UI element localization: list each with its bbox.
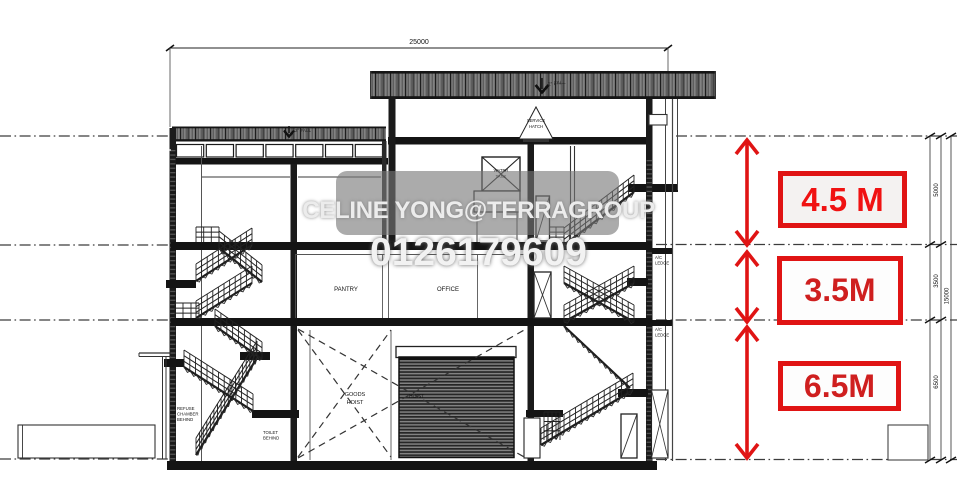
svg-text:5000: 5000	[934, 183, 940, 197]
svg-text:OFFICE: OFFICE	[437, 287, 459, 293]
svg-text:6500: 6500	[934, 375, 940, 389]
svg-text:BEHIND: BEHIND	[177, 417, 193, 422]
svg-text:GOODS: GOODS	[345, 392, 366, 398]
svg-text:HOIST: HOIST	[409, 394, 424, 400]
svg-text:25000: 25000	[409, 39, 429, 46]
svg-text:BEHIND: BEHIND	[263, 436, 279, 441]
svg-text:2° FALL: 2° FALL	[295, 128, 312, 133]
svg-text:REFUSE: REFUSE	[177, 406, 195, 411]
svg-text:A/C: A/C	[655, 327, 662, 332]
svg-text:PANTRY: PANTRY	[334, 287, 358, 293]
svg-text:3500: 3500	[934, 274, 940, 288]
svg-text:LEDGE: LEDGE	[655, 333, 669, 338]
svg-text:TOILET: TOILET	[263, 430, 278, 435]
svg-text:SERVICE: SERVICE	[527, 118, 546, 123]
svg-text:15000: 15000	[945, 287, 951, 304]
svg-text:HATCH: HATCH	[529, 124, 543, 129]
svg-text:CHAMBER: CHAMBER	[177, 412, 199, 417]
